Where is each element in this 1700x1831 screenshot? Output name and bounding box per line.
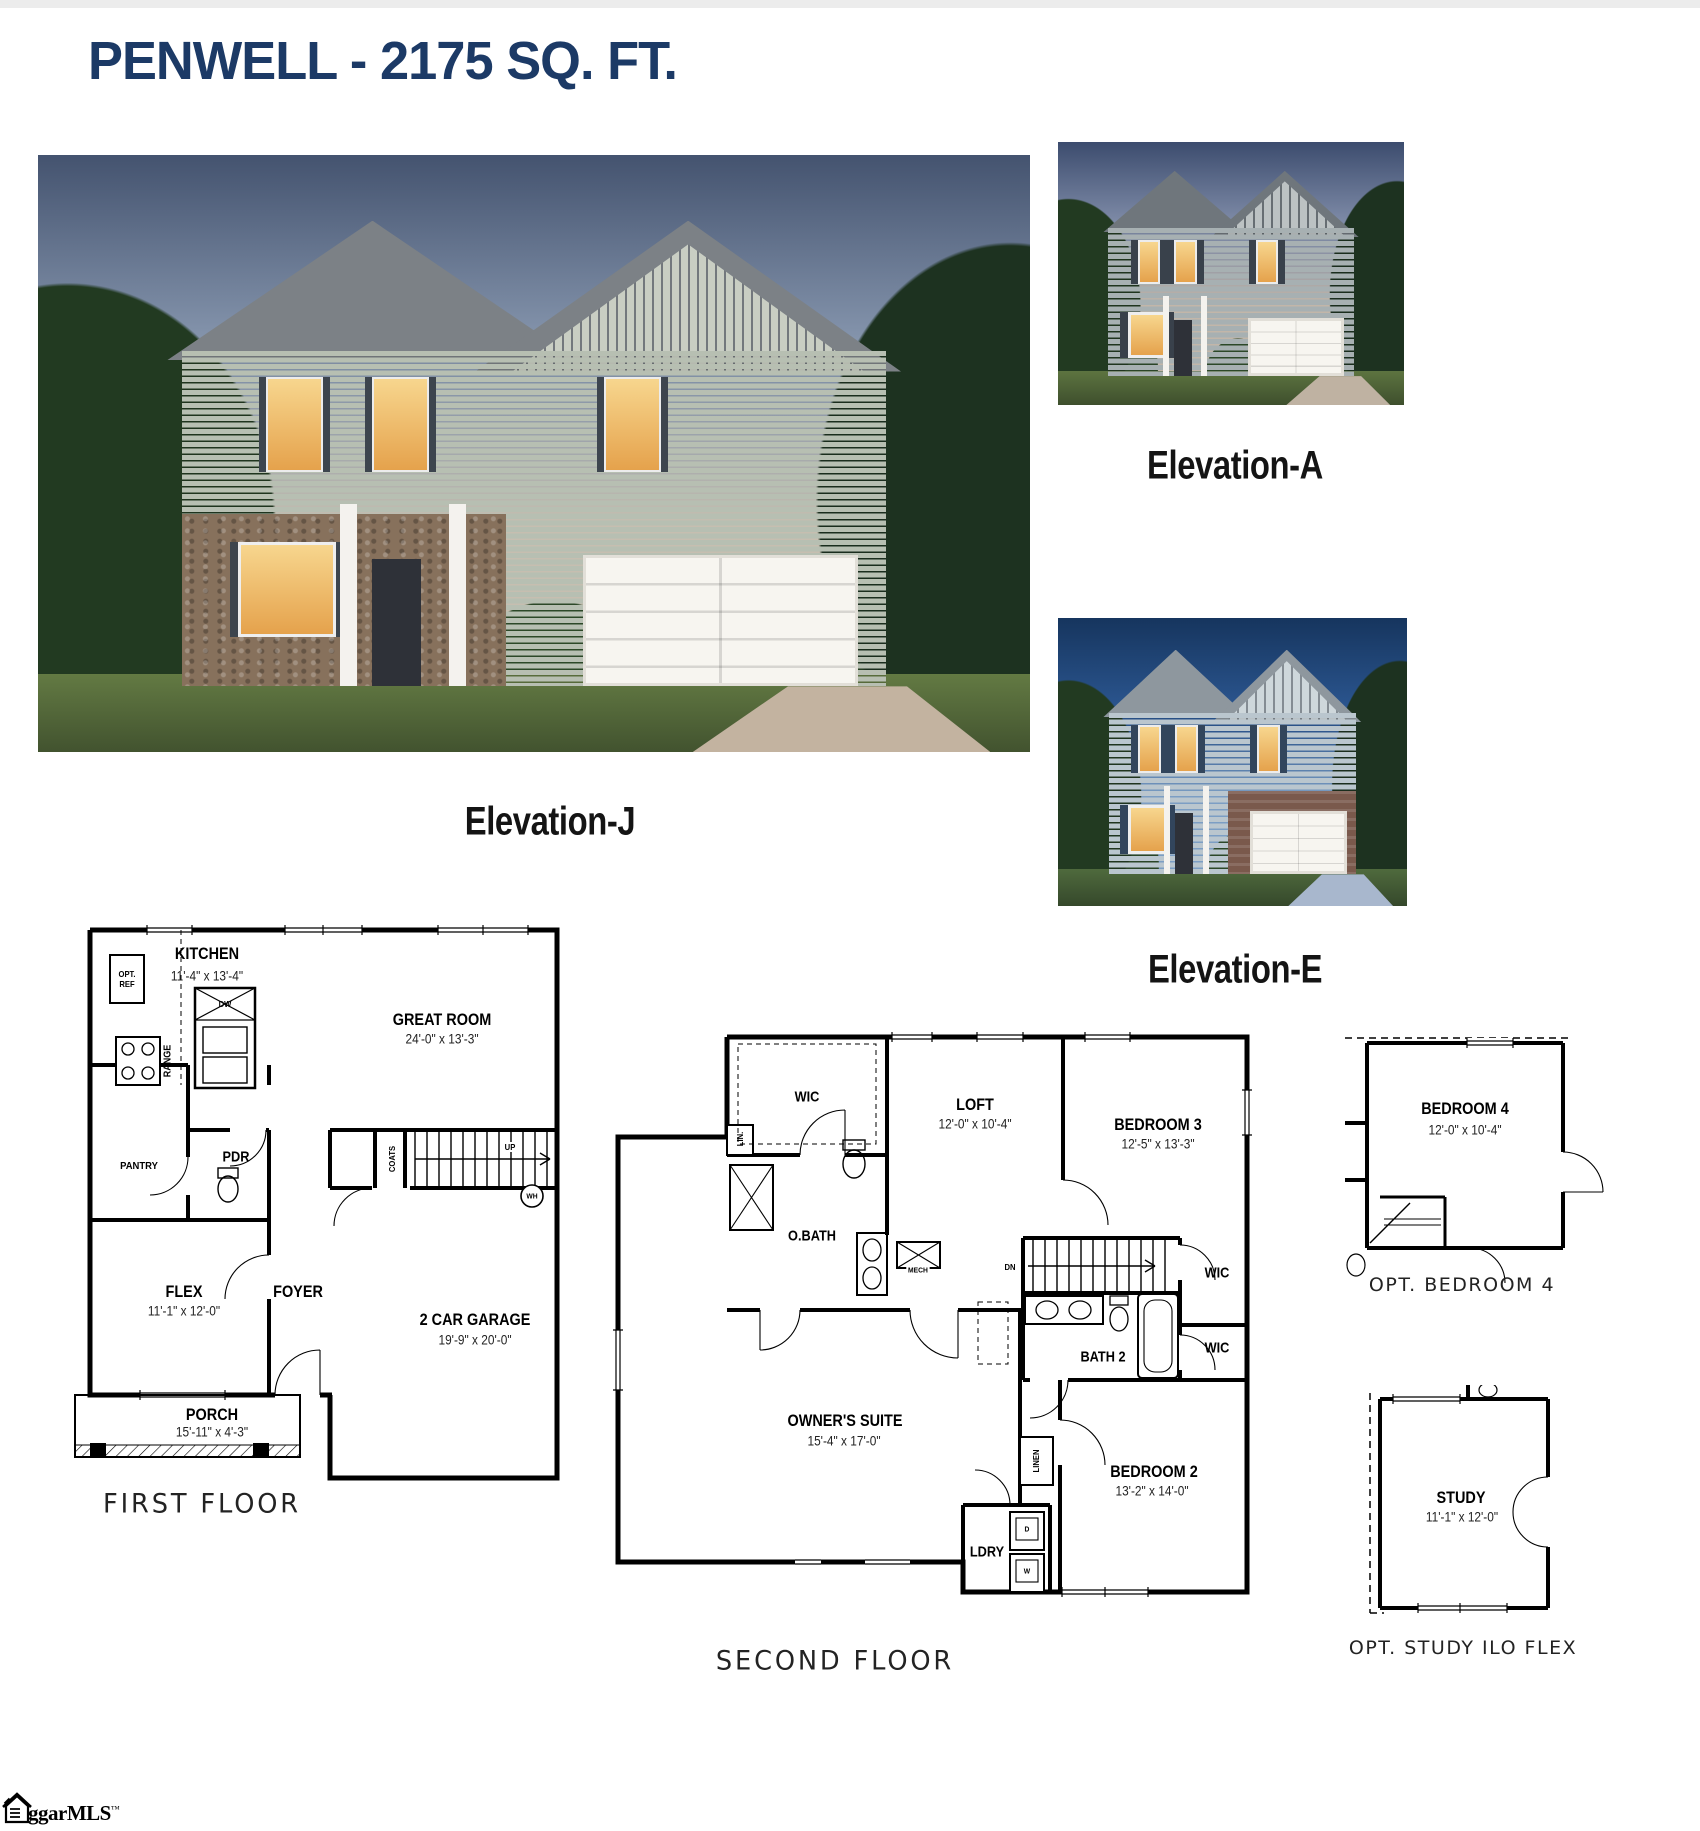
opt-bedroom4-plan: BEDROOM 4 12'-0" x 10'-4" OPT. BEDROOM 4: [1340, 1035, 1700, 1300]
front-door: [1174, 320, 1191, 376]
lower-floor: [182, 514, 887, 686]
porch-post: [449, 504, 466, 687]
flyer-page: PENWELL - 2175 SQ. FT. Elevation-J: [0, 0, 1700, 1831]
label-wic-3: WIC: [1205, 1340, 1230, 1357]
room-label-porch: PORCH: [186, 1405, 238, 1425]
room-label-bedroom4: BEDROOM 4: [1421, 1099, 1509, 1119]
label-dn: DN: [1003, 1262, 1018, 1272]
opt-study-drawing: [1360, 1385, 1700, 1675]
upper-floor-siding: [182, 351, 887, 518]
window: [1257, 725, 1280, 773]
elevation-j-photo: [38, 155, 1030, 752]
label-bath2: BATH 2: [1079, 1349, 1128, 1366]
label-wh: WH: [526, 1192, 537, 1201]
room-dims-study: 11'-1" x 12'-0": [1426, 1510, 1498, 1525]
label-wic: WIC: [795, 1089, 820, 1106]
opt-bedroom4-drawing: [1340, 1035, 1700, 1300]
window: [238, 542, 336, 638]
room-dims-porch: 15'-11" x 4'-3": [176, 1425, 248, 1440]
roof: [1103, 171, 1359, 233]
front-door: [1175, 813, 1192, 875]
room-dims-garage: 19'-9" x 20'-0": [438, 1333, 511, 1348]
room-dims-owners-suite: 15'-4" x 17'-0": [807, 1434, 880, 1449]
label-coats: COATS: [387, 1146, 397, 1172]
window: [372, 377, 429, 472]
window: [266, 377, 323, 472]
porch-post: [1201, 296, 1207, 376]
room-dims-loft: 12'-0" x 10'-4": [938, 1117, 1011, 1132]
label-opt-ref: OPT. REF: [114, 969, 141, 989]
roof: [167, 221, 901, 361]
room-label-garage: 2 CAR GARAGE: [420, 1310, 531, 1330]
window: [1174, 240, 1196, 284]
garage-door: [1250, 811, 1347, 874]
porch-post: [1163, 296, 1169, 376]
window: [1175, 725, 1198, 773]
room-label-owners-suite: OWNER'S SUITE: [787, 1411, 902, 1431]
label-dryer: D: [1025, 1525, 1030, 1534]
room-dims-bedroom2: 13'-2" x 14'-0": [1115, 1484, 1188, 1499]
room-dims-flex: 11'-1" x 12'-0": [148, 1304, 220, 1319]
label-obath: O.BATH: [786, 1228, 837, 1245]
garage-door: [1248, 318, 1344, 376]
elevation-j-label: Elevation-J: [465, 800, 635, 845]
room-dims-bedroom3: 12'-5" x 13'-3": [1121, 1137, 1194, 1152]
porch-post: [1203, 786, 1209, 874]
label-linen: LINEN: [1031, 1450, 1041, 1473]
house: [1103, 171, 1359, 376]
window: [1256, 240, 1278, 284]
first-floor-drawing: [70, 925, 580, 1525]
lower-floor: [1108, 300, 1354, 376]
window: [1128, 312, 1166, 357]
garage-door: [583, 555, 858, 686]
house: [167, 221, 901, 687]
window: [1138, 240, 1160, 284]
porch-post: [340, 504, 357, 687]
opt-study-caption: OPT. STUDY ILO FLEX: [1349, 1637, 1577, 1659]
page-title: PENWELL - 2175 SQ. FT.: [88, 30, 677, 92]
room-label-great-room: GREAT ROOM: [393, 1010, 491, 1030]
second-floor-plan: WIC LIN. LOFT 12'-0" x 10'-4" BEDROOM 3 …: [610, 1030, 1260, 1690]
front-door: [372, 559, 421, 686]
room-label-bedroom2: BEDROOM 2: [1110, 1462, 1198, 1482]
label-lin: LIN.: [735, 1132, 745, 1146]
label-dw: DW: [219, 999, 232, 1009]
elevation-e-photo: [1058, 618, 1407, 906]
window: [1128, 805, 1166, 854]
room-label-kitchen: KITCHEN: [175, 944, 239, 964]
upper-floor-siding: [1108, 228, 1354, 304]
label-ldry: LDRY: [970, 1544, 1004, 1561]
label-wic-2: WIC: [1205, 1265, 1230, 1282]
elevation-a-label: Elevation-A: [1147, 444, 1323, 489]
second-floor-caption: SECOND FLOOR: [716, 1646, 954, 1677]
room-label-bedroom3: BEDROOM 3: [1114, 1115, 1202, 1135]
upper-floor-siding: [1109, 713, 1357, 796]
mls-logo: ggarMLS™: [2, 1792, 119, 1826]
label-up: UP: [503, 1142, 517, 1152]
lower-floor: [1109, 791, 1357, 874]
opt-study-plan: STUDY 11'-1" x 12'-0" OPT. STUDY ILO FLE…: [1360, 1385, 1700, 1675]
roof: [1103, 650, 1361, 717]
window: [604, 377, 661, 472]
logo-text: ggarMLS™: [28, 1801, 119, 1826]
label-washer: W: [1024, 1567, 1030, 1576]
house: [1103, 650, 1361, 875]
label-pantry: PANTRY: [120, 1160, 158, 1172]
room-label-foyer: FOYER: [273, 1282, 323, 1302]
label-pdr: PDR: [223, 1149, 250, 1166]
room-label-loft: LOFT: [956, 1095, 994, 1115]
elevation-a-photo: [1058, 142, 1404, 405]
elevation-e-label: Elevation-E: [1148, 948, 1322, 993]
first-floor-plan: KITCHEN 11'-4" x 13'-4" OPT. REF RANGE D…: [70, 925, 580, 1525]
scan-edge: [0, 0, 1700, 8]
room-label-flex: FLEX: [166, 1282, 203, 1302]
room-dims-kitchen: 11'-4" x 13'-4": [171, 969, 243, 984]
room-dims-bedroom4: 12'-0" x 10'-4": [1428, 1123, 1501, 1138]
porch-post: [1164, 786, 1170, 874]
room-label-study: STUDY: [1437, 1488, 1486, 1508]
opt-bedroom4-caption: OPT. BEDROOM 4: [1369, 1274, 1555, 1296]
label-mech: MECH: [906, 1266, 929, 1275]
first-floor-caption: FIRST FLOOR: [103, 1489, 301, 1520]
label-range: RANGE: [163, 1045, 174, 1078]
window: [1138, 725, 1161, 773]
room-dims-great-room: 24'-0" x 13'-3": [405, 1032, 478, 1047]
